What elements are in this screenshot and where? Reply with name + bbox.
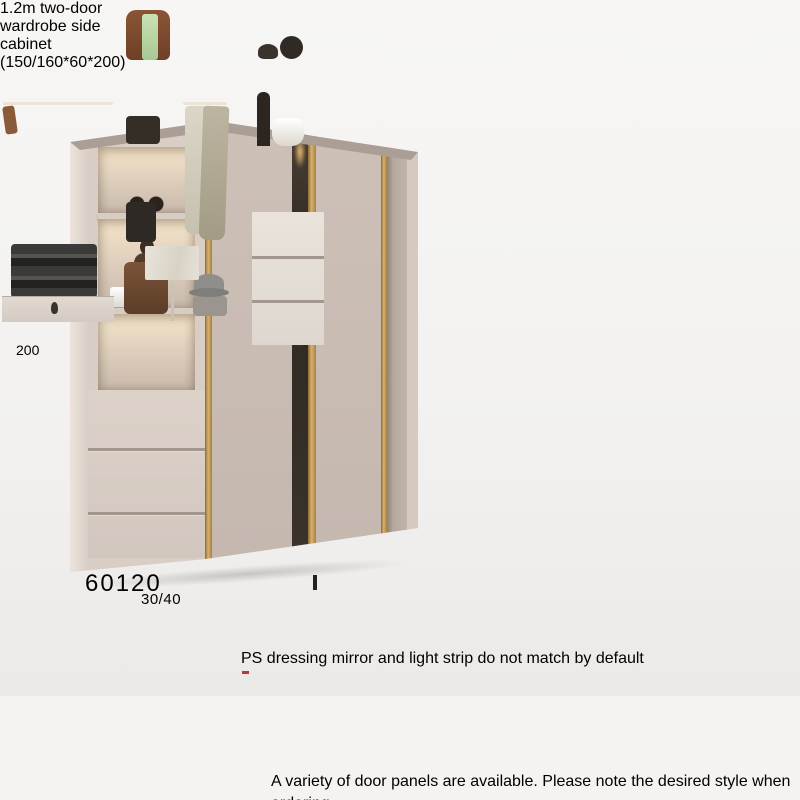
product-title: 1.2m two-door wardrobe side cabinet (150…: [0, 0, 125, 72]
green-scarf: [142, 14, 158, 60]
depth-dimension-label: 30/40: [141, 591, 181, 608]
patterned-handbag-icon: [257, 158, 309, 211]
shelf-board: [0, 83, 122, 89]
decor-object: [280, 36, 303, 59]
drawer-separator: [252, 256, 324, 259]
hanging-shirt: [9, 106, 29, 234]
height-dimension-label: 200: [16, 342, 39, 358]
red-underline-mark: [242, 671, 249, 674]
drawer-separator: [88, 448, 205, 451]
door-right-gray-panel: [308, 405, 387, 551]
drawer-separator: [88, 512, 205, 515]
patterned-handbag-icon: [118, 327, 170, 387]
covered-text-remnant: [313, 575, 317, 590]
covered-text-remnant: [68, 592, 80, 597]
hanging-shirt: [75, 106, 95, 237]
door-left-gray-panel: [205, 397, 302, 559]
white-tureen: [272, 118, 304, 146]
keyhole-icon: [51, 302, 58, 314]
folded-clothes-stack: [11, 244, 97, 298]
dressing-mirror: [143, 138, 203, 284]
footer-note: A variety of door panels are available. …: [271, 771, 800, 793]
covered-text-remnant: [178, 758, 190, 766]
product-image: 200 60120 30/40 PS dressing mirror and l…: [0, 0, 800, 800]
covered-text-remnant: [95, 699, 105, 708]
hanging-plaid-jacket: [53, 106, 75, 232]
hanging-shirt: [31, 106, 51, 239]
covered-text-remnant: [545, 699, 555, 708]
covered-text-remnant: [185, 606, 193, 611]
covered-text-remnant: [543, 757, 557, 766]
round-box: [193, 296, 227, 316]
dimension-tick: [410, 531, 412, 545]
pillow: [185, 58, 225, 86]
hanging-rod: [183, 102, 227, 105]
wardrobe-right-frame: [407, 149, 418, 531]
note-text: PS dressing mirror and light strip do no…: [241, 640, 644, 677]
hanging-garment: [389, 317, 401, 397]
covered-text-remnant: [182, 700, 194, 708]
hat-brim: [189, 288, 229, 297]
drawer-block: [252, 212, 324, 345]
decor-object: [258, 44, 278, 59]
bust-sculpture-icon: [257, 92, 270, 146]
covered-text-remnant: [658, 757, 667, 766]
mirror-reflection: [145, 246, 199, 280]
covered-text-remnant: [162, 607, 176, 611]
storage-box: [123, 76, 177, 94]
drawer-separator: [252, 300, 324, 303]
hanging-coat: [199, 106, 230, 241]
covered-text-remnant: [205, 607, 215, 611]
keyhole-drawer: [2, 296, 114, 322]
height-dimension-line: [62, 140, 64, 570]
covered-text-remnant: [84, 592, 94, 597]
hanging-plaid-jacket: [96, 105, 115, 243]
mirror-pole: [171, 282, 174, 321]
storage-box: [125, 60, 175, 76]
shelf-board: [180, 86, 228, 91]
drawer-block: [88, 390, 205, 558]
